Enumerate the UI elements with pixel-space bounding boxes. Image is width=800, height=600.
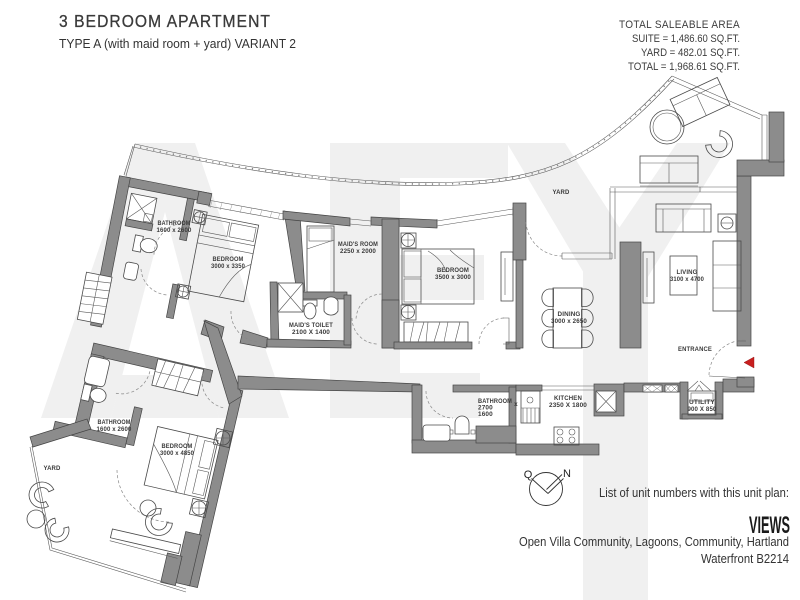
svg-text:DINING: DINING xyxy=(558,311,581,318)
svg-text:BEDROOM: BEDROOM xyxy=(437,267,469,274)
svg-text:3000 x 3350: 3000 x 3350 xyxy=(211,263,245,270)
svg-text:2100 X 1400: 2100 X 1400 xyxy=(292,329,330,336)
svg-text:3 BEDROOM APARTMENT: 3 BEDROOM APARTMENT xyxy=(59,11,271,31)
svg-text:ENTRANCE: ENTRANCE xyxy=(678,346,713,353)
svg-text:List of unit numbers with this: List of unit numbers with this unit plan… xyxy=(599,485,789,500)
svg-text:2250 x 2000: 2250 x 2000 xyxy=(340,248,376,255)
svg-text:TOTAL = 1,968.61 SQ.FT.: TOTAL = 1,968.61 SQ.FT. xyxy=(628,61,740,73)
svg-text:3100 x 4700: 3100 x 4700 xyxy=(670,276,704,283)
svg-text:Open Villa Community, Lagoons,: Open Villa Community, Lagoons, Community… xyxy=(519,534,789,549)
svg-text:N: N xyxy=(563,468,571,480)
svg-text:x: x xyxy=(514,401,518,408)
svg-text:3500 x 3000: 3500 x 3000 xyxy=(435,274,471,281)
svg-text:900 X 850: 900 X 850 xyxy=(688,406,717,413)
svg-text:BEDROOM: BEDROOM xyxy=(213,256,244,263)
svg-text:MAID'S ROOM: MAID'S ROOM xyxy=(338,241,378,248)
svg-text:YARD: YARD xyxy=(44,465,61,472)
svg-text:TOTAL SALEABLE AREA: TOTAL SALEABLE AREA xyxy=(619,19,740,31)
svg-text:YARD: YARD xyxy=(553,189,570,196)
svg-text:1600 x 2600: 1600 x 2600 xyxy=(97,426,132,433)
svg-text:3000 x 4850: 3000 x 4850 xyxy=(160,450,194,457)
svg-text:3000 x 2650: 3000 x 2650 xyxy=(551,318,587,325)
svg-text:1600: 1600 xyxy=(478,411,493,418)
svg-text:BATHROOM: BATHROOM xyxy=(158,220,191,227)
svg-text:KITCHEN: KITCHEN xyxy=(554,395,582,402)
svg-text:Q: Q xyxy=(524,469,533,481)
svg-text:YARD = 482.01 SQ.FT.: YARD = 482.01 SQ.FT. xyxy=(641,47,740,59)
svg-text:Waterfront B2214: Waterfront B2214 xyxy=(701,551,789,566)
svg-text:SUITE = 1,486.60 SQ.FT.: SUITE = 1,486.60 SQ.FT. xyxy=(632,33,740,45)
svg-text:2350 X 1800: 2350 X 1800 xyxy=(549,402,587,409)
svg-text:1600 x 2600: 1600 x 2600 xyxy=(157,227,192,234)
svg-text:TYPE A (with maid room + yard): TYPE A (with maid room + yard) VARIANT 2 xyxy=(59,36,296,51)
svg-text:BATHROOM: BATHROOM xyxy=(98,419,131,426)
svg-text:BEDROOM: BEDROOM xyxy=(162,443,193,450)
svg-text:MAID'S TOILET: MAID'S TOILET xyxy=(289,322,333,329)
svg-text:UTILITY: UTILITY xyxy=(689,399,716,406)
svg-text:LIVING: LIVING xyxy=(677,269,698,276)
